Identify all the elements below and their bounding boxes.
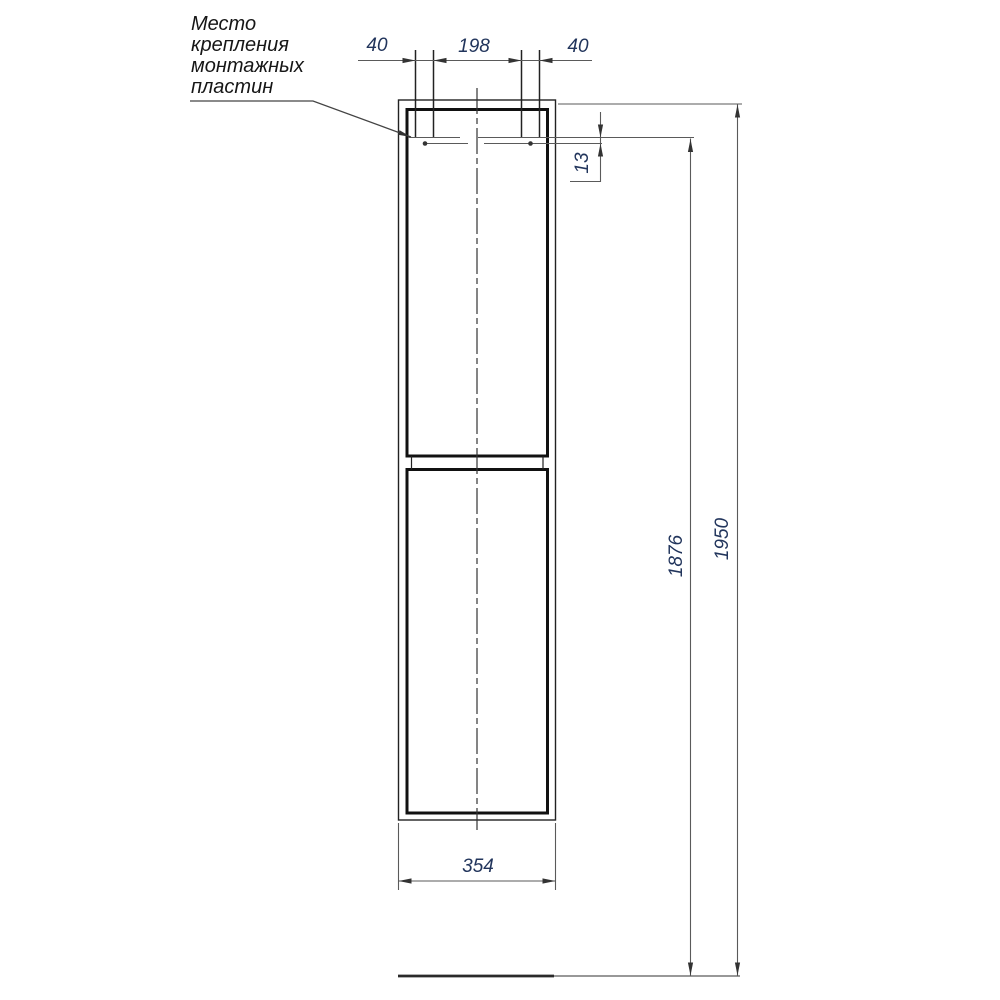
dim-label-354: 354 [462,856,494,878]
technical-drawing [0,0,1000,1000]
arrow-down-icon [598,125,603,138]
arrow-down-icon [735,963,740,976]
arrow-left-icon [434,58,447,63]
arrow-left-icon [399,878,412,883]
arrow-right-icon [403,58,416,63]
mounting-dot-left [423,141,428,146]
mounting-dot-right [528,141,533,146]
arrow-up-icon [735,105,740,118]
arrow-left-icon [540,58,553,63]
arrow-up-icon [598,144,603,157]
dim-label-1950: 1950 [712,518,734,560]
dimension-arrowheads [399,58,741,976]
dim-label-13: 13 [572,152,594,173]
arrow-right-icon [543,878,556,883]
dim-label-40-right: 40 [567,36,588,58]
arrow-right-icon [509,58,522,63]
dim-label-198: 198 [458,36,490,58]
dim-label-40-left: 40 [366,35,387,57]
drawing-canvas: Место крепления монтажных пластин 40 198… [0,0,1000,1000]
leader-arrowhead [398,130,411,137]
dim-label-1876: 1876 [666,535,688,577]
arrow-down-icon [688,963,693,976]
note-mounting-plates: Место крепления монтажных пластин [191,14,341,98]
mounting-level-lines [408,138,694,144]
leader-line [190,101,411,137]
arrow-up-icon [688,139,693,152]
